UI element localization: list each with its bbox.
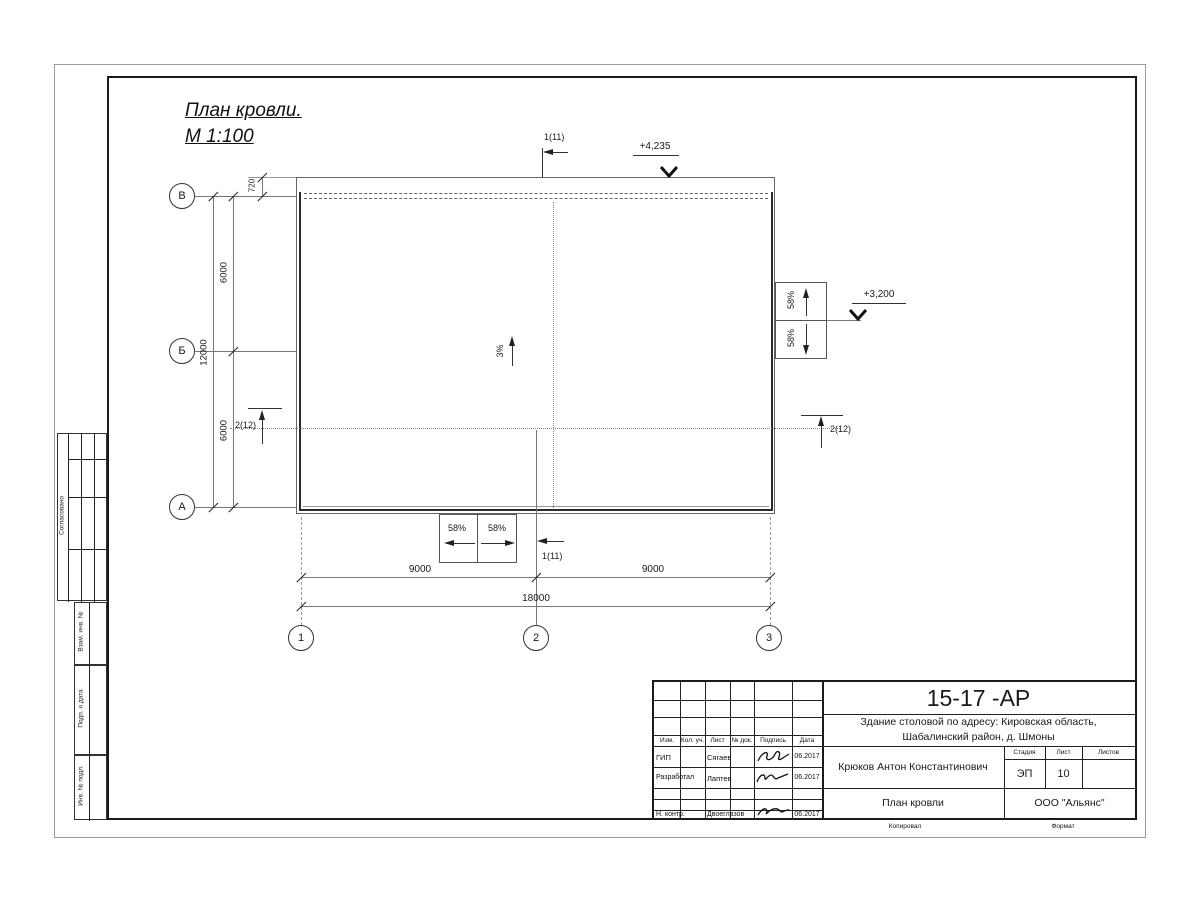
copied-label: Копировал (865, 823, 945, 830)
roof-ridge-dotted-line (553, 202, 554, 508)
right-canopy-slope-top: 58% (786, 286, 796, 314)
podp-label: Подп. и дата (78, 684, 85, 734)
elevation-right-underline (852, 303, 906, 304)
eaves-dashed-line-2 (304, 198, 768, 199)
sheet-value: 10 (1045, 759, 1082, 788)
col-data: Дата (792, 737, 822, 744)
eaves-dashed-line-1 (304, 193, 768, 194)
wall-left (299, 192, 301, 510)
section-1-bottom-label: 1(11) (542, 551, 562, 561)
row-name: Лаптев (707, 774, 732, 783)
elevation-top-arrow-icon (660, 166, 678, 178)
row-date: 06.2017 (792, 811, 822, 818)
dim-line-18000 (301, 606, 770, 607)
object-name-line1: Здание столовой по адресу: Кировская обл… (822, 715, 1135, 730)
col-list: Лист (705, 737, 730, 744)
grid-line (654, 700, 822, 701)
right-canopy-slope-bottom: 58% (786, 324, 796, 352)
dim-line-720 (262, 177, 263, 196)
section-1-bottom-arrow-head (537, 538, 547, 544)
grid-line (68, 549, 106, 550)
grid-line (705, 682, 706, 818)
object-name-line2: Шабалинский район, д. Шмоны (822, 730, 1135, 745)
section-1-top-label: 1(11) (544, 132, 564, 142)
doc-number: 15-17 -АР (822, 682, 1135, 714)
vzam-label: Взам. инв. № (78, 607, 85, 657)
grid-line (68, 459, 106, 460)
title-block: Изм. Кол. уч. Лист № док. Подпись Дата Г… (652, 680, 1137, 820)
section-2-right-arrow-head (818, 416, 824, 426)
elevation-top-label: +4,235 (627, 141, 683, 152)
section-2-left-bar (248, 408, 282, 409)
drawing-title-line1: План кровли. (185, 100, 302, 122)
dim-12000: 12000 (199, 331, 210, 375)
elevation-top-underline (633, 155, 679, 156)
section-2-trace-line (230, 428, 840, 429)
grid-line (654, 746, 822, 747)
axis-B-line (195, 196, 296, 197)
bottom-canopy-divider (477, 514, 478, 563)
section-2-left-arrow-head (259, 410, 265, 420)
grid-line (89, 666, 90, 756)
grid-line (654, 767, 822, 768)
format-label: Формат (1033, 823, 1093, 830)
object-name: Здание столовой по адресу: Кировская обл… (822, 715, 1135, 746)
dim-6000-bottom: 6000 (219, 409, 230, 453)
grid-line (654, 735, 822, 736)
axis-bubble-2: 2 (523, 625, 549, 651)
section-2-left-label: 2(12) (226, 420, 256, 430)
dim-18000: 18000 (511, 593, 561, 604)
dim-line-12000 (213, 196, 214, 507)
drawing-sheet: Согласовано Взам. инв. № Подп. и дата Ин… (0, 0, 1200, 900)
bottom-canopy-arrow-right-head (505, 540, 515, 546)
section-1-top-arrow-head (543, 149, 553, 155)
row-date: 06.2017 (792, 774, 822, 781)
grid-line (654, 788, 822, 789)
elevation-right-arrow-icon (849, 309, 867, 321)
right-canopy-arrow-bottom-head (803, 345, 809, 355)
grid-line (730, 682, 731, 818)
col-podpis: Подпись (754, 737, 792, 744)
extension-line-axis1 (301, 517, 302, 625)
grid-line (792, 682, 793, 818)
wall-right (771, 192, 773, 510)
grid-line (680, 682, 681, 818)
bottom-canopy-slope-right: 58% (482, 523, 512, 533)
row-role: ГИП (656, 753, 671, 762)
row-name: Сягаев (707, 753, 731, 762)
sheet-label: Лист (1045, 749, 1082, 756)
right-canopy-arrow-top-head (803, 288, 809, 298)
elevation-right-label: +3,200 (851, 289, 907, 300)
signature-nkontr (754, 801, 792, 819)
grid-line (654, 717, 822, 718)
dim-9000-right: 9000 (628, 564, 678, 575)
axis-bubble-Be: Б (169, 338, 195, 364)
extension-line-axis3 (770, 517, 771, 625)
dim-9000-left: 9000 (395, 564, 445, 575)
row-name: Двоеглазов (707, 811, 744, 818)
row-role: Н. контр. (656, 811, 685, 818)
grid-line (654, 799, 822, 800)
approval-label: Согласовано (59, 486, 66, 546)
drawing-name: План кровли (822, 788, 1004, 818)
dim-720: 720 (248, 172, 257, 200)
signature-razrabotal (754, 769, 792, 787)
bottom-canopy (439, 514, 517, 563)
sheets-label: Листов (1082, 749, 1135, 756)
author-name: Крюков Антон Константинович (822, 746, 1004, 788)
slope-label: 3% (495, 339, 505, 363)
row-date: 06.2017 (792, 753, 822, 760)
axis-bubble-1: 1 (288, 625, 314, 651)
col-dok: № док. (730, 737, 754, 744)
bottom-canopy-slope-left: 58% (442, 523, 472, 533)
axis-Be-line (195, 351, 296, 352)
dim-6000-top: 6000 (219, 251, 230, 295)
stage-value: ЭП (1004, 759, 1045, 788)
grid-line (89, 756, 90, 821)
company-name: ООО "Альянс" (1004, 788, 1135, 818)
axis-bubble-3: 3 (756, 625, 782, 651)
row-role: Разработал (656, 774, 694, 781)
signature-gip (754, 748, 792, 766)
axis-bubble-B: В (169, 183, 195, 209)
grid-line (89, 603, 90, 666)
bottom-canopy-arrow-left-head (444, 540, 454, 546)
axis-A-line (195, 507, 296, 508)
axis-bubble-A: А (169, 494, 195, 520)
slope-arrow-head (509, 336, 515, 346)
stage-label: Стадия (1004, 749, 1045, 756)
right-canopy-divider (775, 320, 827, 321)
grid-line (68, 497, 106, 498)
inv-label: Инв. № подл. (78, 761, 85, 811)
col-koluch: Кол. уч. (680, 737, 705, 744)
col-izm: Изм. (654, 737, 680, 744)
section-2-right-label: 2(12) (830, 424, 851, 434)
drawing-title-line2: М 1:100 (185, 126, 254, 148)
